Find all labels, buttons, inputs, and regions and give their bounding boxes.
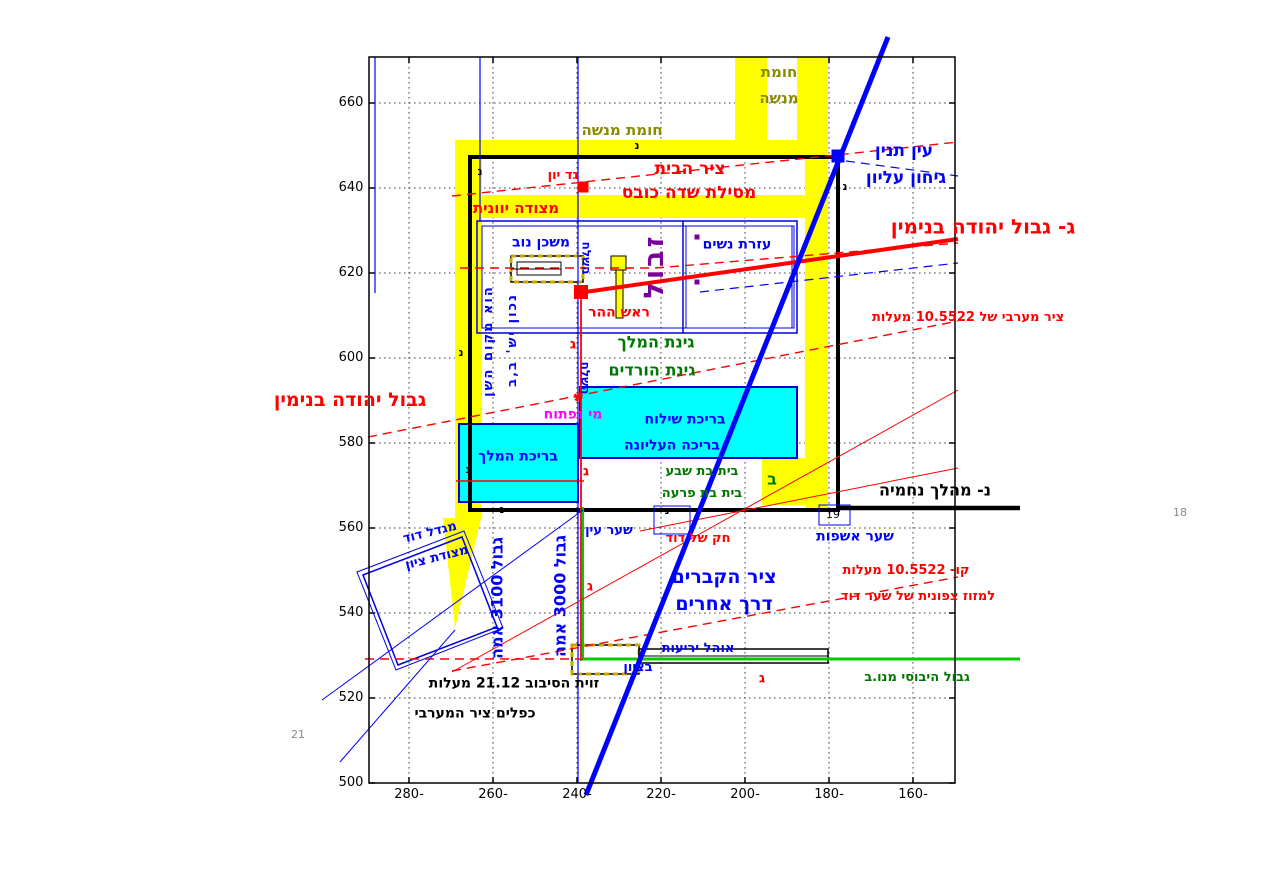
outer-number-18: 18: [1173, 507, 1187, 519]
label-gvul-hayevusi: גבול היבוסי מנו.ב: [864, 671, 970, 685]
label-mishkan-nov: משכן נוב: [512, 236, 570, 251]
label-19: 19: [826, 509, 840, 521]
label-gvul-3100: גבול 3100 אמה: [490, 537, 507, 659]
x-tick-label--280: -280: [394, 788, 424, 802]
y-tick-label-620: 620: [339, 266, 364, 280]
y-tick-label-600: 600: [339, 351, 364, 365]
x-tick-label--160: -160: [898, 788, 928, 802]
label-homat-menashe-top-line1: חומת: [761, 65, 798, 81]
label-kav-10-5522: קו- 10.5522 מעלות: [843, 564, 970, 578]
figure-canvas: חומתמנשהחומת מנשהעין תניןגיחון עליוןציר …: [0, 0, 1280, 871]
label-gihon-elyon: גיחון עליון: [866, 170, 946, 188]
label-mei-neftoach: מי נפתוח: [544, 408, 603, 423]
marker-rosh-hahar: [574, 285, 588, 299]
label-zevul: זבול: [641, 234, 669, 299]
label-lamezuz-tzfonit: למזוז צפונית של שער דוד: [841, 590, 995, 604]
glyph-nun-2: נ: [635, 140, 640, 152]
glyph-nun-5: נ: [466, 464, 471, 476]
marker-purple-dot-2: [695, 280, 700, 285]
x-tick-label--200: -200: [730, 788, 760, 802]
y-tick-label-540: 540: [339, 606, 364, 620]
label-ohel-yeriot: אוהל יריעות: [662, 642, 735, 656]
glyph-nun-3: נ: [843, 181, 848, 193]
label-nachon-citation: נכון יש' ב,ב: [506, 293, 520, 387]
label-ginat-havradim: גינת הורדים: [609, 363, 696, 380]
label-hashelach-lower: השלח: [579, 362, 592, 395]
marker-gad-yavan: [578, 182, 589, 193]
label-gvul-3000: גבול 3000 אמה: [553, 535, 570, 657]
label-gad-yavan: גד יון: [548, 169, 579, 183]
label-beit-bat-sheva: בית בת שבע: [666, 465, 739, 479]
glyph-nun-1: נ: [478, 166, 483, 178]
label-derech-acherim: דרך אחרים: [675, 595, 772, 615]
outer-number-21: 21: [291, 729, 305, 741]
label-gvul-yehuda-binyamin-right: ג- גבול יהודה בנימין: [891, 217, 1076, 238]
glyph-nun-4: נ: [459, 347, 464, 359]
marker-purple-dot-1: [695, 235, 700, 240]
label-breichat-hamelech: בריכת המלך: [478, 450, 558, 465]
glyph-gimel-2: ג: [583, 465, 589, 480]
y-tick-label-560: 560: [339, 521, 364, 535]
label-metzuda-yevanit: מצודה יוונית: [473, 201, 559, 217]
y-tick-label-580: 580: [339, 436, 364, 450]
x-tick-label--260: -260: [478, 788, 508, 802]
label-hu-makom-hashen: הוא מקום השן: [482, 285, 496, 397]
label-ein-tanin: עין תנין: [875, 143, 933, 161]
y-tick-label-520: 520: [339, 691, 364, 705]
y-tick-label-500: 500: [339, 776, 364, 790]
label-tzir-habait: ציר הבית: [655, 161, 726, 179]
label-bet-green: ב: [767, 472, 777, 489]
x-tick-label--220: -220: [646, 788, 676, 802]
label-mesilat-sde-koves: מסילת שדה כובס: [622, 185, 757, 203]
label-beit-bat-paro: בית בת פרעה: [662, 487, 742, 501]
label-ezrat-nashim: עזרת נשים: [703, 238, 772, 253]
label-homat-menashe-mid: חומת מנשה: [581, 123, 662, 139]
label-shaar-ayin: שער עין: [585, 524, 633, 538]
y-tick-label-640: 640: [339, 181, 364, 195]
label-hashelach-upper: השלח: [580, 242, 593, 275]
label-betzion: בציון: [623, 661, 652, 675]
label-shaar-ashpot: שער אשפות: [816, 530, 894, 545]
label-tzir-hakvarim: ציר הקברים: [672, 568, 777, 588]
label-gvul-yehuda-left: גבול יהודה בנימין: [274, 391, 426, 411]
label-breicha-elyona: בריכה העליונה: [624, 439, 720, 454]
glyph-gimel-1: ג: [570, 338, 576, 353]
marker-ein-tanin: [832, 150, 845, 163]
glyph-gimel-3: ג: [587, 580, 593, 595]
glyph-nun-6: נ: [500, 504, 505, 516]
label-tzir-maaravi: ציר מערבי של 10.5522 מעלות: [872, 311, 1064, 325]
label-kfalaim-tzir: כפלים ציר המערבי: [414, 707, 535, 722]
label-rosh-hahar: ראש ההר: [588, 306, 650, 321]
label-zavit-hasibuv: זוית הסיבוב 21.12 מעלות: [429, 677, 599, 692]
glyph-gimel-4: ג: [759, 672, 765, 687]
label-mahalach-nechemia: נ- מהלך נחמיה: [879, 483, 991, 500]
x-tick-label--180: -180: [814, 788, 844, 802]
label-breichat-shiloach: בריכת שילוח: [644, 413, 725, 428]
wall-menashe-strip-right: [797, 57, 828, 141]
x-tick-label--240: -240: [562, 788, 592, 802]
label-ginat-hamelech: גינת המלך: [617, 335, 694, 352]
label-chok-shel-david: חק של דוד: [665, 532, 730, 546]
y-tick-label-660: 660: [339, 96, 364, 110]
glyph-nun-7: נ: [665, 505, 670, 517]
label-homat-menashe-top-line2: מנשה: [759, 91, 798, 107]
